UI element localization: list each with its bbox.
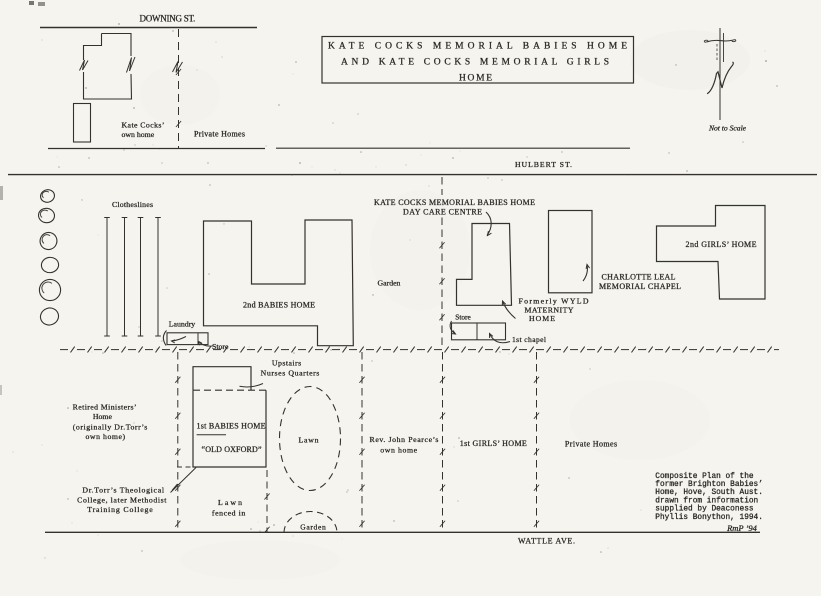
svg-text:KATE COCKS MEMORIAL BABIES HOM: KATE COCKS MEMORIAL BABIES HOME: [328, 41, 627, 51]
svg-text:WATTLE AVE.: WATTLE AVE.: [518, 537, 576, 546]
svg-text:drawn from information: drawn from information: [655, 497, 758, 505]
svg-text:own home: own home: [122, 130, 155, 139]
svg-text:Phyllis Bonython, 1994.: Phyllis Bonython, 1994.: [655, 514, 763, 522]
svg-text:2nd BABIES HOME: 2nd BABIES HOME: [243, 300, 315, 309]
svg-text:Rev. John Pearce’s: Rev. John Pearce’s: [370, 435, 439, 444]
svg-text:MATERNITY: MATERNITY: [525, 306, 574, 315]
svg-text:2nd GIRLS’ HOME: 2nd GIRLS’ HOME: [686, 240, 757, 249]
svg-text:RmP ’94: RmP ’94: [726, 523, 758, 533]
svg-text:Not to Scale: Not to Scale: [708, 124, 747, 133]
svg-text:Composite Plan of the: Composite Plan of the: [655, 473, 754, 481]
svg-text:(originally Dr.Torr’s: (originally Dr.Torr’s: [73, 422, 148, 431]
svg-text:MEMORIAL CHAPEL: MEMORIAL CHAPEL: [599, 282, 681, 291]
svg-text:Lawn: Lawn: [299, 436, 319, 445]
svg-text:Home: Home: [93, 412, 113, 421]
svg-text:Lawn: Lawn: [218, 498, 242, 507]
svg-text:HULBERT ST.: HULBERT ST.: [515, 160, 573, 169]
svg-text:1st BABIES HOME: 1st BABIES HOME: [197, 422, 266, 431]
svg-text:1st chapel: 1st chapel: [512, 335, 546, 344]
svg-text:Upstairs: Upstairs: [272, 358, 301, 367]
svg-text:“OLD OXFORD”: “OLD OXFORD”: [202, 445, 262, 454]
svg-text:Laundry: Laundry: [169, 320, 196, 329]
svg-text:fenced in: fenced in: [212, 509, 245, 518]
svg-text:Dr.Torr’s Theological: Dr.Torr’s Theological: [82, 486, 165, 495]
svg-text:supplied by Deaconess: supplied by Deaconess: [655, 506, 754, 514]
svg-text:Retired Ministers’: Retired Ministers’: [73, 403, 137, 412]
svg-text:former Brighton Babies’: former Brighton Babies’: [655, 481, 763, 489]
svg-text:College, later Methodist: College, later Methodist: [77, 495, 167, 504]
svg-text:DOWNING ST.: DOWNING ST.: [140, 14, 197, 24]
svg-text:HOME: HOME: [529, 314, 555, 323]
svg-text:Formerly WYLD: Formerly WYLD: [519, 297, 589, 306]
svg-text:Kate Cocks’: Kate Cocks’: [122, 121, 165, 130]
svg-text:1st GIRLS’ HOME: 1st GIRLS’ HOME: [460, 439, 527, 448]
svg-text:own home): own home): [86, 432, 126, 441]
svg-text:own home: own home: [380, 445, 417, 454]
svg-text:Clotheslines: Clotheslines: [112, 200, 153, 209]
svg-text:Private Homes: Private Homes: [194, 129, 245, 138]
svg-text:Training College: Training College: [87, 505, 153, 514]
svg-text:CHARLOTTE LEAL: CHARLOTTE LEAL: [602, 272, 676, 281]
svg-text:Nurses Quarters: Nurses Quarters: [261, 368, 320, 377]
svg-text:Store: Store: [455, 312, 470, 321]
svg-text:Home, Hove, South Aust.: Home, Hove, South Aust.: [655, 489, 763, 497]
svg-text:AND KATE COCKS MEMORIAL GIRLS: AND KATE COCKS MEMORIAL GIRLS: [341, 58, 609, 68]
svg-text:HOME: HOME: [459, 73, 492, 83]
svg-text:Garden: Garden: [300, 522, 326, 531]
